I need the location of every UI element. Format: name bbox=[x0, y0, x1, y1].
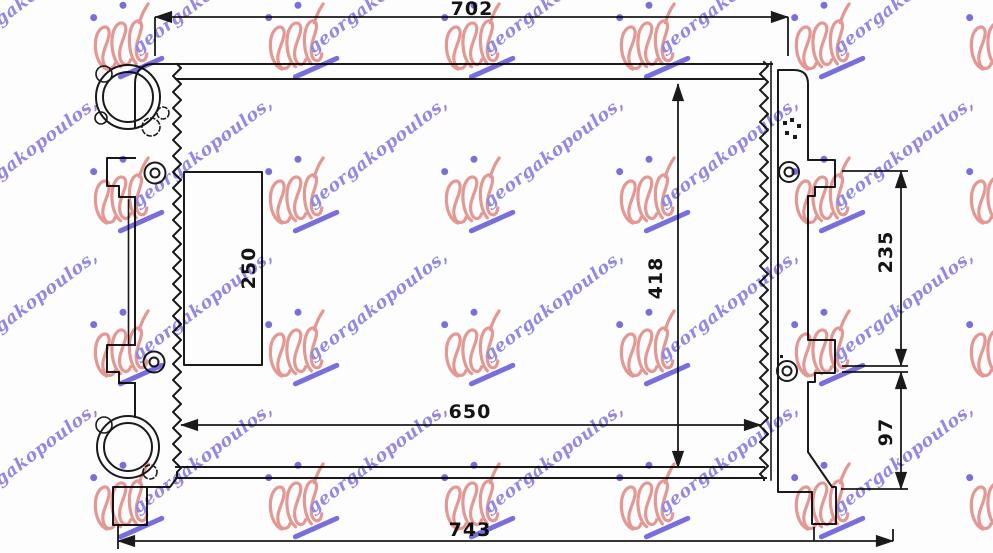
watermark-text: georgakopoulos, bbox=[655, 94, 803, 212]
watermark-text: georgakopoulos, bbox=[480, 400, 628, 518]
watermark-text: georgakopoulos, bbox=[655, 0, 803, 58]
watermark-text: georgakopoulos, bbox=[830, 0, 978, 58]
watermark-text: georgakopoulos, bbox=[129, 0, 277, 58]
watermark-text: georgakopoulos, bbox=[129, 94, 277, 212]
watermark-text: georgakopoulos, bbox=[655, 247, 803, 365]
watermark-layer: georgakopoulos,georgakopoulos,georgakopo… bbox=[0, 0, 993, 553]
watermark-text: georgakopoulos, bbox=[304, 400, 452, 518]
watermark-text: georgakopoulos, bbox=[830, 400, 978, 518]
georgakopoulos-stamp-icon bbox=[964, 304, 993, 387]
watermark-text: georgakopoulos, bbox=[0, 94, 102, 212]
watermark-text: georgakopoulos, bbox=[304, 247, 452, 365]
watermark-text: georgakopoulos, bbox=[129, 247, 277, 365]
watermark-text: georgakopoulos, bbox=[0, 400, 102, 518]
georgakopoulos-stamp-icon bbox=[964, 457, 993, 540]
watermark-text: georgakopoulos, bbox=[129, 400, 277, 518]
watermark-text: georgakopoulos, bbox=[655, 400, 803, 518]
watermark-text: georgakopoulos, bbox=[480, 94, 628, 212]
watermark-text: georgakopoulos, bbox=[0, 247, 102, 365]
watermark-text: georgakopoulos, bbox=[830, 94, 978, 212]
watermark-text: georgakopoulos, bbox=[480, 0, 628, 58]
watermark-text: georgakopoulos, bbox=[830, 247, 978, 365]
watermark-text: georgakopoulos, bbox=[0, 0, 102, 58]
georgakopoulos-stamp-icon bbox=[964, 0, 993, 80]
georgakopoulos-stamp-icon bbox=[964, 151, 993, 234]
watermark-text: georgakopoulos, bbox=[304, 94, 452, 212]
technical-drawing-canvas: 702 743 650 418 235 bbox=[0, 0, 993, 553]
watermark-text: georgakopoulos, bbox=[480, 247, 628, 365]
watermark-text: georgakopoulos, bbox=[304, 0, 452, 58]
